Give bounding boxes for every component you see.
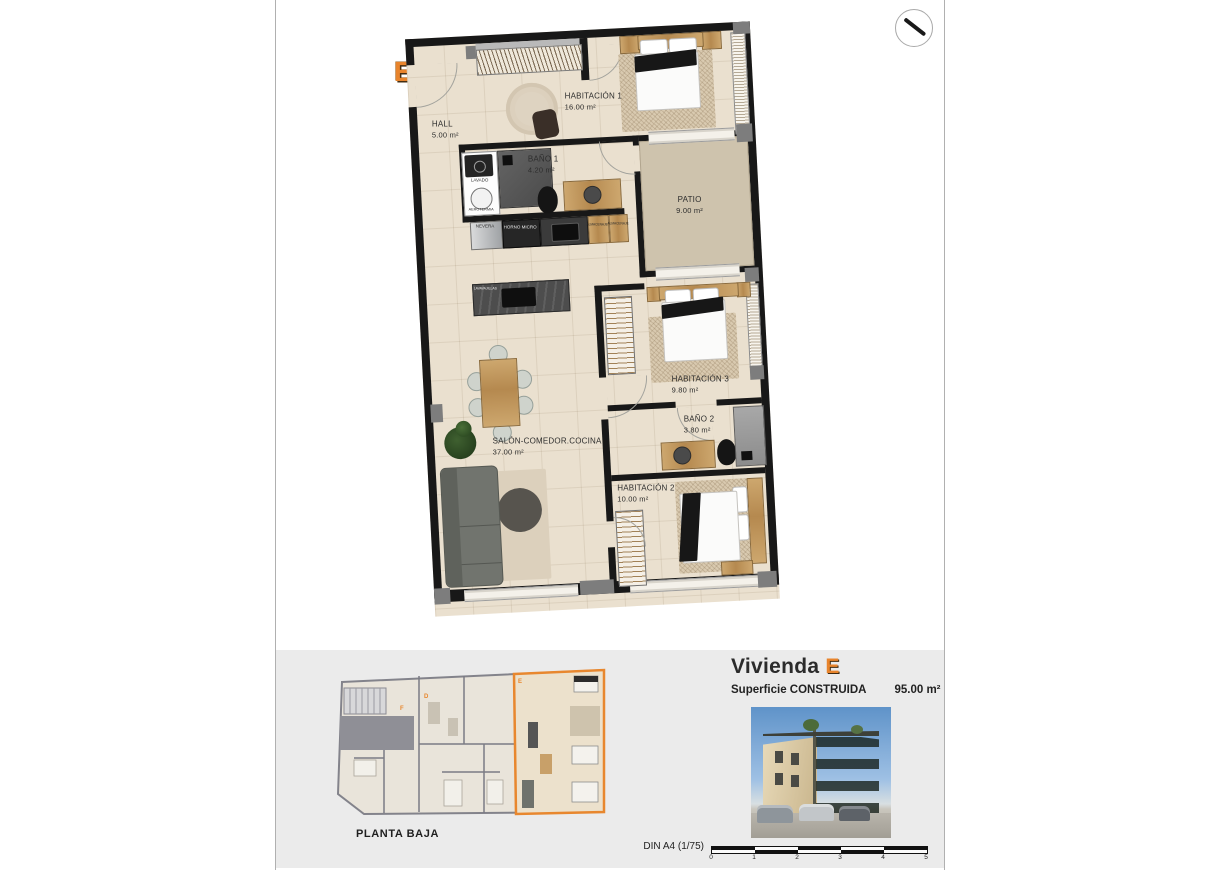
photo-facade-right [815, 731, 879, 815]
mini-island [528, 722, 538, 748]
main-floor-plan: LAVADO AEROTERMIA NEVERA HORNO MICRO ALM… [405, 21, 780, 616]
column-block [430, 404, 443, 423]
cooktop [501, 287, 536, 308]
room-area: 4.20 m² [528, 165, 559, 175]
wall-segment [409, 107, 443, 599]
floor-plan-page: { "document": { "unit_letter": "E" }, "p… [0, 0, 1220, 870]
room-label-habitacion1: HABITACIÓN 1 16.00 m² [565, 92, 622, 113]
door-arc [599, 140, 636, 177]
column-block [580, 579, 615, 595]
room-name: BAÑO 2 [684, 415, 715, 426]
bed-headboard [747, 477, 767, 564]
photo-window [775, 773, 783, 785]
mini-sofa [522, 780, 534, 808]
photo-corner-edge [813, 729, 816, 815]
compass-circle-icon [895, 9, 933, 47]
photo-car [799, 804, 834, 821]
mini-unit-letter-d: D [424, 694, 429, 700]
armchair [531, 108, 560, 140]
room-name: HABITACIÓN 3 [672, 374, 729, 385]
scale-bar [711, 846, 928, 854]
wall-segment [716, 397, 761, 405]
dining-table [479, 358, 521, 428]
column-block [736, 123, 753, 142]
kitchen-island [472, 279, 571, 316]
page-border-right [944, 0, 945, 870]
scale-bar-bottom [712, 850, 927, 853]
bed-blanket [679, 493, 701, 562]
shower [733, 405, 767, 467]
room-label-habitacion3: HABITACIÓN 3 9.80 m² [672, 374, 729, 395]
oven-label: HORNO MICRO [502, 226, 538, 231]
mini-furniture [428, 702, 440, 724]
mini-bed [572, 746, 598, 764]
kitchen-counter [540, 216, 589, 246]
room-name: PATIO [676, 195, 703, 206]
room-name: SALÓN-COMEDOR.COCINA [493, 437, 602, 448]
sofa-cushion-line [462, 562, 502, 565]
wall-segment [601, 419, 613, 521]
scale-tick: 5 [920, 854, 932, 861]
photo-car [757, 805, 793, 823]
mini-bed [572, 782, 598, 802]
column-block [434, 588, 451, 605]
mini-bed [487, 780, 503, 804]
dwelling-title-prefix: Vivienda [731, 655, 819, 678]
dwelling-title: ViviendaE [731, 655, 840, 679]
mini-unit-letter-e: E [518, 679, 522, 685]
room-area: 9.00 m² [676, 206, 703, 216]
window [464, 584, 578, 602]
bed-bench [721, 560, 754, 576]
room-name: HABITACIÓN 1 [565, 92, 622, 103]
window [630, 575, 760, 594]
room-area: 37.00 m² [493, 447, 602, 457]
footer-panel: E F D PLANTA BAJA ViviendaE Superficie C… [276, 650, 944, 868]
room-area: 3.80 m² [684, 425, 715, 435]
shower-head-icon [741, 451, 752, 461]
column-block [733, 21, 751, 34]
wall-segment [594, 283, 644, 292]
mini-bed [354, 760, 376, 776]
photo-car [839, 806, 870, 821]
photo-window [775, 751, 783, 763]
photo-facade-left [763, 737, 817, 813]
scale-tick: 2 [791, 854, 803, 861]
toilet [537, 186, 558, 214]
scale-tick: 4 [877, 854, 889, 861]
oven-micro [502, 219, 541, 249]
photo-window [791, 753, 799, 765]
scale-tick: 0 [705, 854, 717, 861]
sofa [440, 465, 504, 588]
column-block [757, 571, 777, 588]
room-name: HALL [432, 119, 459, 130]
door-arc [606, 375, 649, 418]
room-area: 9.80 m² [672, 385, 729, 395]
mini-bed-blanket [574, 676, 598, 682]
scale-tick: 1 [748, 854, 760, 861]
sofa-backrest [441, 468, 463, 587]
wall-segment [405, 39, 414, 65]
scale-tick: 3 [834, 854, 846, 861]
room-area: 10.00 m² [617, 494, 674, 504]
room-label-habitacion2: HABITACIÓN 2 10.00 m² [617, 483, 674, 504]
entry-wardrobe [476, 44, 583, 76]
shower-head-icon [502, 155, 513, 166]
mini-unit-letter-f: F [400, 706, 404, 712]
dwelling-title-letter: E [825, 655, 839, 678]
kitchen-sink [551, 223, 580, 242]
room-area: 16.00 m² [565, 102, 622, 112]
compass-needle-icon [904, 17, 927, 36]
scale-label: DIN A4 (1/75) [606, 841, 704, 852]
surface-label: Superficie CONSTRUIDA [731, 684, 866, 696]
room-label-salon: SALÓN-COMEDOR.COCINA 37.00 m² [493, 437, 602, 458]
fridge-label: NEVERA [467, 224, 503, 229]
door-arc [414, 63, 459, 108]
storage-cabinet [588, 215, 610, 244]
surface-line: Superficie CONSTRUIDA95.00 m² [731, 684, 941, 696]
nightstand [701, 31, 722, 50]
washer-drum-icon [474, 160, 487, 173]
washing-machine [464, 154, 493, 177]
room-name: HABITACIÓN 2 [617, 483, 674, 494]
core-block [340, 716, 414, 750]
room-label-bano2: BAÑO 2 3.80 m² [684, 415, 715, 436]
mini-furniture [448, 718, 458, 736]
overview-mini-plan: E F D [324, 662, 616, 820]
column-block [745, 267, 760, 282]
room-area: 5.00 m² [432, 130, 459, 140]
mini-table [540, 754, 552, 774]
laundry-label: LAVADO [461, 179, 499, 184]
column-block [750, 365, 765, 380]
mini-patio [570, 706, 600, 736]
room-label-hall: HALL 5.00 m² [432, 119, 459, 140]
building-photo [751, 707, 891, 838]
room-name: BAÑO 1 [528, 154, 559, 165]
photo-window [791, 775, 799, 787]
photo-roof-plant [851, 725, 863, 734]
room-label-patio: PATIO 9.00 m² [676, 195, 703, 216]
sofa-cushion-line [460, 524, 500, 527]
room-label-bano1: BAÑO 1 4.20 m² [528, 154, 559, 175]
mini-bed [444, 780, 462, 806]
heat-pump-label: AEROTERMIA [460, 208, 502, 212]
surface-value: 95.00 m² [894, 684, 940, 696]
overview-caption: PLANTA BAJA [356, 828, 439, 840]
wardrobe-closet [604, 296, 636, 375]
storage-label: ALMACENAJE [604, 223, 632, 227]
dishwasher-label: LAVAVAJILLAS [470, 288, 500, 292]
photo-roof-plant [803, 719, 819, 731]
storage-cabinet [609, 214, 629, 243]
